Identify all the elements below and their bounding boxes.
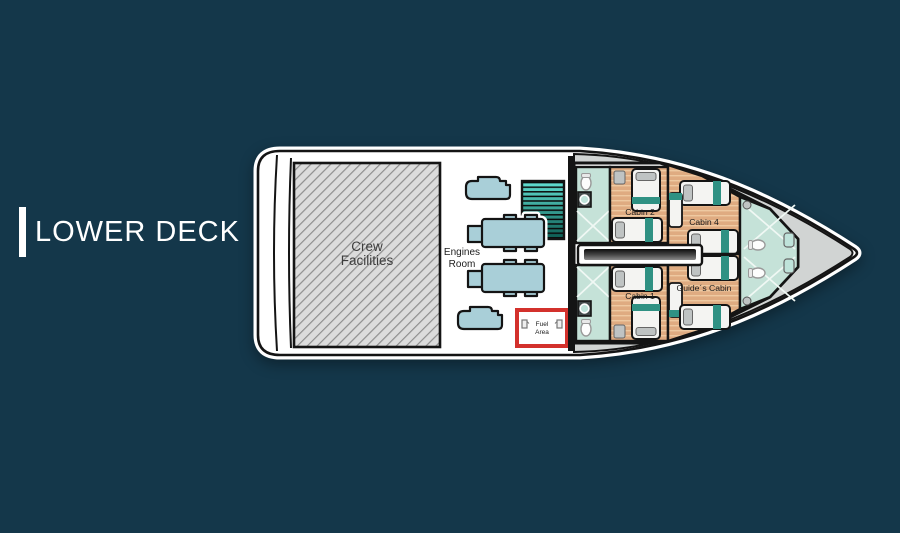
guides-cabin-label: Guide´s Cabin: [677, 283, 732, 293]
sink-icon: [578, 192, 591, 207]
fuel-area-label-line2: Area: [535, 329, 549, 336]
guides-cabin: Guide´s Cabin: [668, 254, 740, 341]
cabin-1: Cabin 1: [610, 265, 668, 341]
fixture: [743, 201, 751, 209]
sink-icon: [784, 259, 794, 273]
bathroom-bottom: [576, 265, 610, 341]
fuel-area-box: Fuel Area: [517, 310, 567, 346]
bed-icon: [612, 267, 662, 291]
cabin-2-label: Cabin 2: [625, 207, 655, 217]
toilet-icon: [749, 240, 766, 250]
boat-floorplan: Crew Facilities Engines Room Fuel Area: [250, 145, 890, 365]
generator-icon: [458, 307, 502, 329]
bedside-seat: [614, 325, 625, 338]
title-accent-bar: [19, 207, 26, 257]
fuel-area-label-line1: Fuel: [536, 321, 549, 328]
crew-facilities-label-line1: Crew: [351, 239, 383, 254]
crew-facilities-label-line2: Facilities: [341, 253, 394, 268]
crew-facilities-area: Crew Facilities: [294, 163, 440, 347]
bedside-seat: [614, 171, 625, 184]
page-background: LOWER DECK: [0, 0, 900, 533]
fixture: [743, 297, 751, 305]
engine-icon: [468, 215, 544, 251]
bed-icon: [612, 218, 662, 242]
corridor-walkway: [584, 249, 696, 260]
engines-room-label-line1: Engines: [444, 247, 480, 258]
bed-icon: [680, 181, 730, 205]
bed-icon: [632, 297, 660, 339]
engines-room-label-line2: Room: [449, 259, 476, 270]
corridor: [578, 245, 702, 265]
bed-icon: [632, 169, 660, 211]
page-title: LOWER DECK: [35, 216, 240, 249]
engine-icon: [468, 260, 544, 296]
bed-icon: [680, 305, 730, 329]
deck-title: LOWER DECK: [19, 207, 240, 257]
generator-icon: [466, 177, 510, 199]
bed-icon: [669, 193, 682, 227]
sink-icon: [578, 301, 591, 316]
cabin-1-label: Cabin 1: [625, 291, 655, 301]
bathroom-top: [576, 167, 610, 243]
toilet-icon: [581, 320, 591, 337]
cabin-4: Cabin 4: [668, 165, 740, 254]
toilet-icon: [749, 268, 766, 278]
cabin-4-label: Cabin 4: [689, 217, 719, 227]
sink-icon: [784, 233, 794, 247]
toilet-icon: [581, 174, 591, 191]
cabin-2: Cabin 2: [610, 167, 668, 243]
